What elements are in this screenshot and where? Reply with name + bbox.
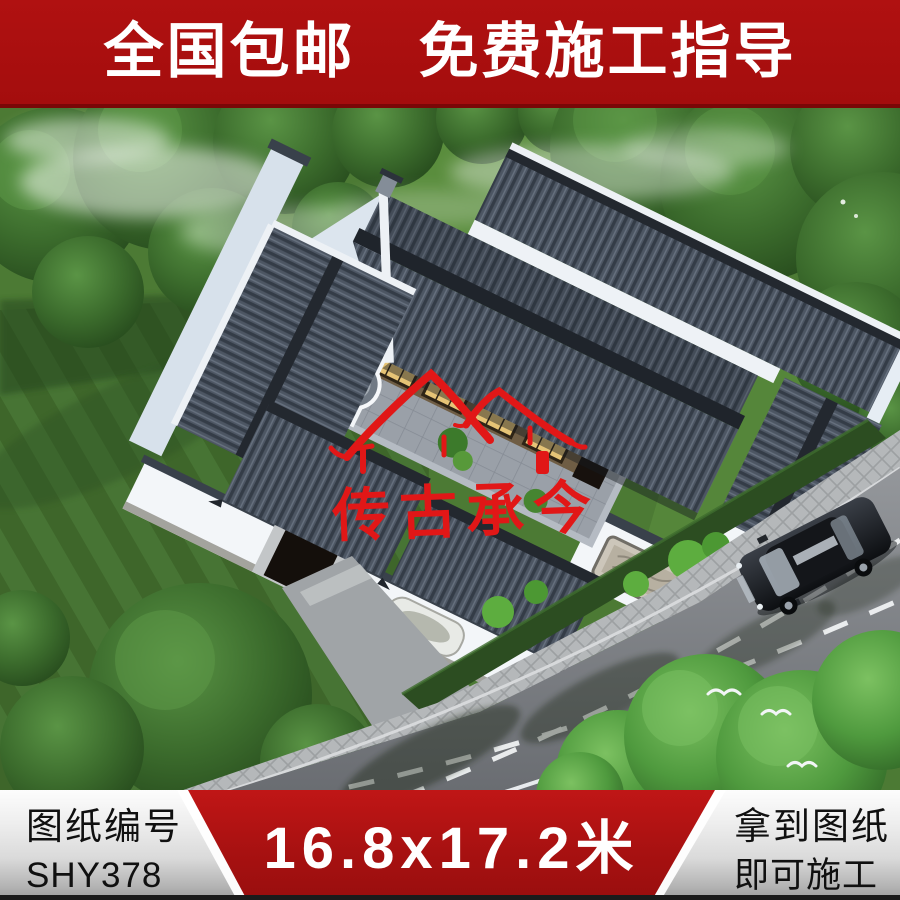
construction-note-block: 拿到图纸 即可施工 xyxy=(734,806,890,896)
drawing-number-code: SHY378 xyxy=(26,856,182,896)
bottom-edge-strip xyxy=(0,895,900,900)
product-image: 传古承今 全国包邮 免费施工指导 16.8x17.2米 图纸编号 SHY378 … xyxy=(0,0,900,900)
promo-banner-text: 全国包邮 免费施工指导 xyxy=(104,22,797,82)
construction-note-line1: 拿到图纸 xyxy=(734,806,890,849)
watermark-text: 传古承今 xyxy=(330,473,601,550)
seal-icon xyxy=(536,451,549,474)
promo-banner: 全国包邮 免费施工指导 xyxy=(0,0,900,108)
dimensions-text: 16.8x17.2米 xyxy=(188,790,715,896)
drawing-number-block: 图纸编号 SHY378 xyxy=(26,806,182,896)
drawing-number-label: 图纸编号 xyxy=(26,806,182,849)
aerial-photo: 传古承今 xyxy=(0,0,900,900)
construction-note-line2: 即可施工 xyxy=(734,856,890,896)
info-banner: 16.8x17.2米 图纸编号 SHY378 拿到图纸 即可施工 xyxy=(0,790,900,900)
